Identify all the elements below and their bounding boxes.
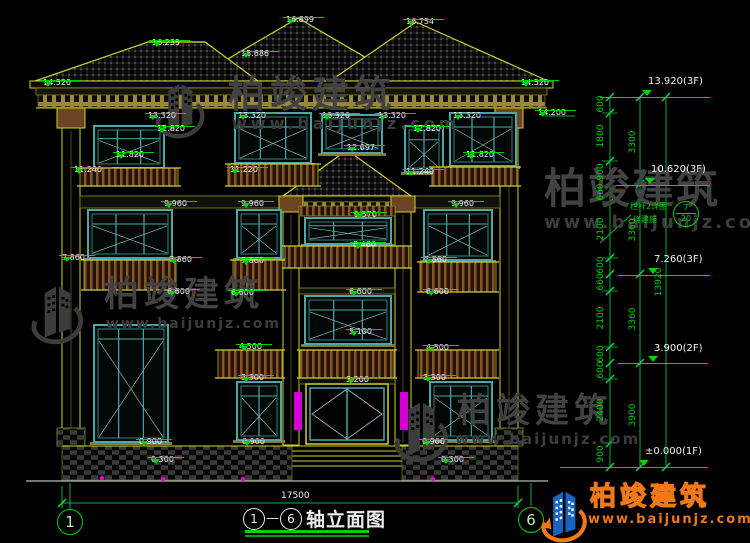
watermark-logo-icon bbox=[16, 280, 96, 346]
elevation-level-flag: 9.960 bbox=[451, 191, 474, 206]
title-axis-end-bubble: 6 bbox=[280, 508, 302, 530]
detail-reference-bubble: 7 20 bbox=[673, 201, 699, 227]
window bbox=[301, 296, 395, 347]
window bbox=[84, 210, 176, 261]
floor-level-label: 3.900(2F) bbox=[654, 343, 703, 354]
elevation-level-flag: 8.460 bbox=[353, 232, 376, 247]
title-underline-2 bbox=[245, 535, 369, 537]
elevation-level-flag: 11.220 bbox=[230, 157, 258, 172]
elevation-level-flag: 16.754 bbox=[406, 9, 434, 24]
elevation-level-flag: 0.900 bbox=[422, 429, 445, 444]
page-title: 轴立面图 bbox=[306, 505, 386, 532]
elevation-level-flag: 9.960 bbox=[164, 191, 187, 206]
floor-level-flag-triangle bbox=[648, 356, 658, 362]
floor-level-label: 13.920(3F) bbox=[648, 76, 703, 87]
drawing-title: 1 — 6 轴立面图 bbox=[243, 505, 386, 532]
railing bbox=[282, 246, 412, 268]
cad-canvas: 柏竣建筑 www.baijunjz.com 柏竣建筑 www.baijunjz.… bbox=[0, 0, 750, 543]
plinth bbox=[26, 446, 548, 481]
entry-door bbox=[306, 384, 388, 444]
elevation-level-flag: 15.686 bbox=[241, 41, 269, 56]
floor-level-line bbox=[600, 97, 710, 98]
floor-level-label: ±0.000(1F) bbox=[645, 446, 702, 457]
elevation-level-flag: 6.600 bbox=[349, 279, 372, 294]
detail-number: 7 bbox=[674, 204, 698, 212]
elevation-level-flag: 13.320 bbox=[322, 103, 350, 118]
dim-segment-label: 3360 bbox=[628, 297, 638, 341]
floor-level-line bbox=[560, 467, 708, 468]
elevation-level-flag: 12.820 bbox=[157, 116, 185, 131]
dim-segment-label: 3900 bbox=[628, 393, 638, 437]
floor-level-line bbox=[618, 275, 710, 276]
dim-total-label: 13920 bbox=[654, 260, 664, 304]
watermark-brand: 柏竣建筑 bbox=[104, 278, 281, 313]
dim-segment-label: 900 bbox=[596, 432, 606, 476]
elevation-level-flag: 0.300 bbox=[441, 447, 464, 462]
elevation-level-flag: 7.860 bbox=[169, 247, 192, 262]
watermark-brand: 柏竣建筑 bbox=[457, 394, 640, 428]
elevation-level-flag: 14.520 bbox=[43, 70, 71, 85]
floor-level-flag-triangle bbox=[645, 178, 655, 184]
entry-steps bbox=[292, 446, 402, 466]
floor-level-line bbox=[618, 363, 708, 364]
elevation-level-flag: 6.600 bbox=[167, 279, 190, 294]
dim-segment-label: 600 bbox=[596, 348, 606, 392]
elevation-level-flag: 16.235 bbox=[152, 30, 180, 45]
watermark: 柏竣建筑 www.baijunjz.com bbox=[140, 76, 459, 132]
elevation-level-flag: 4.500 bbox=[239, 334, 262, 349]
elevation-level-flag: 3.300 bbox=[423, 365, 446, 380]
elevation-level-flag: 9.570 bbox=[354, 202, 377, 217]
elevation-level-flag: 14.200 bbox=[538, 100, 566, 115]
title-axis-separator: — bbox=[266, 511, 279, 526]
watermark-url: www.baijunjz.com bbox=[106, 317, 281, 331]
elevation-level-flag: 9.960 bbox=[241, 191, 264, 206]
elevation-level-flag: 12.097 bbox=[347, 135, 375, 150]
floor-level-flag-triangle bbox=[642, 90, 652, 96]
elevation-level-flag: 0.900 bbox=[139, 429, 162, 444]
axis-bubble-1: 1 bbox=[57, 509, 83, 535]
dim-segment-label: 3300 bbox=[628, 120, 638, 164]
floor-level-flag-triangle bbox=[639, 460, 649, 466]
elevation-level-flag: 3.200 bbox=[346, 367, 369, 382]
elevation-level-flag: 13.320 bbox=[238, 103, 266, 118]
site-logo[interactable]: 柏竣建筑 www.baijunjz.com bbox=[538, 484, 750, 526]
floor-level-line bbox=[616, 185, 710, 186]
floor-level-label: 10.620(3F) bbox=[651, 164, 706, 175]
elevation-level-flag: 7.860 bbox=[241, 248, 264, 263]
elevation-level-flag: 11.240 bbox=[74, 157, 102, 172]
elevation-level-flag: 14.520 bbox=[521, 70, 549, 85]
elevation-level-flag: 13.320 bbox=[453, 103, 481, 118]
title-underline bbox=[245, 530, 369, 533]
site-logo-brand: 柏竣建筑 bbox=[590, 484, 750, 510]
window bbox=[90, 325, 172, 445]
elevation-level-flag: 11.820 bbox=[116, 142, 144, 157]
site-logo-url: www.baijunjz.com bbox=[588, 513, 750, 526]
elevation-level-flag: 11.240 bbox=[406, 159, 434, 174]
elevation-level-flag: 4.500 bbox=[426, 335, 449, 350]
elevation-level-flag: 6.600 bbox=[426, 279, 449, 294]
elevation-level-flag: 7.860 bbox=[424, 247, 447, 262]
elevation-level-flag: 0.900 bbox=[242, 429, 265, 444]
elevation-level-flag: 11.820 bbox=[466, 142, 494, 157]
watermark-url: www.baijunjz.com bbox=[455, 432, 640, 447]
elevation-level-flag: 16.899 bbox=[286, 7, 314, 22]
elevation-level-flag: 3.300 bbox=[241, 365, 264, 380]
elevation-level-flag: 0.300 bbox=[151, 447, 174, 462]
dim-segment-label: 2400 bbox=[596, 388, 606, 432]
callout-subtext: 详建施 bbox=[633, 216, 667, 224]
title-axis-start-bubble: 1 bbox=[243, 508, 265, 530]
overall-width-label: 17500 bbox=[281, 491, 310, 501]
sheet-number: 20 bbox=[674, 215, 698, 223]
elevation-level-flag: 6.600 bbox=[231, 280, 254, 295]
dim-segment-label: 3360 bbox=[628, 208, 638, 252]
elevation-level-flag: 5.100 bbox=[349, 319, 372, 334]
elevation-level-flag: 13.320 bbox=[378, 103, 406, 118]
elevation-level-flag: 7.860 bbox=[62, 245, 85, 260]
elevation-level-flag: 12.820 bbox=[413, 116, 441, 131]
site-logo-icon bbox=[538, 486, 588, 543]
